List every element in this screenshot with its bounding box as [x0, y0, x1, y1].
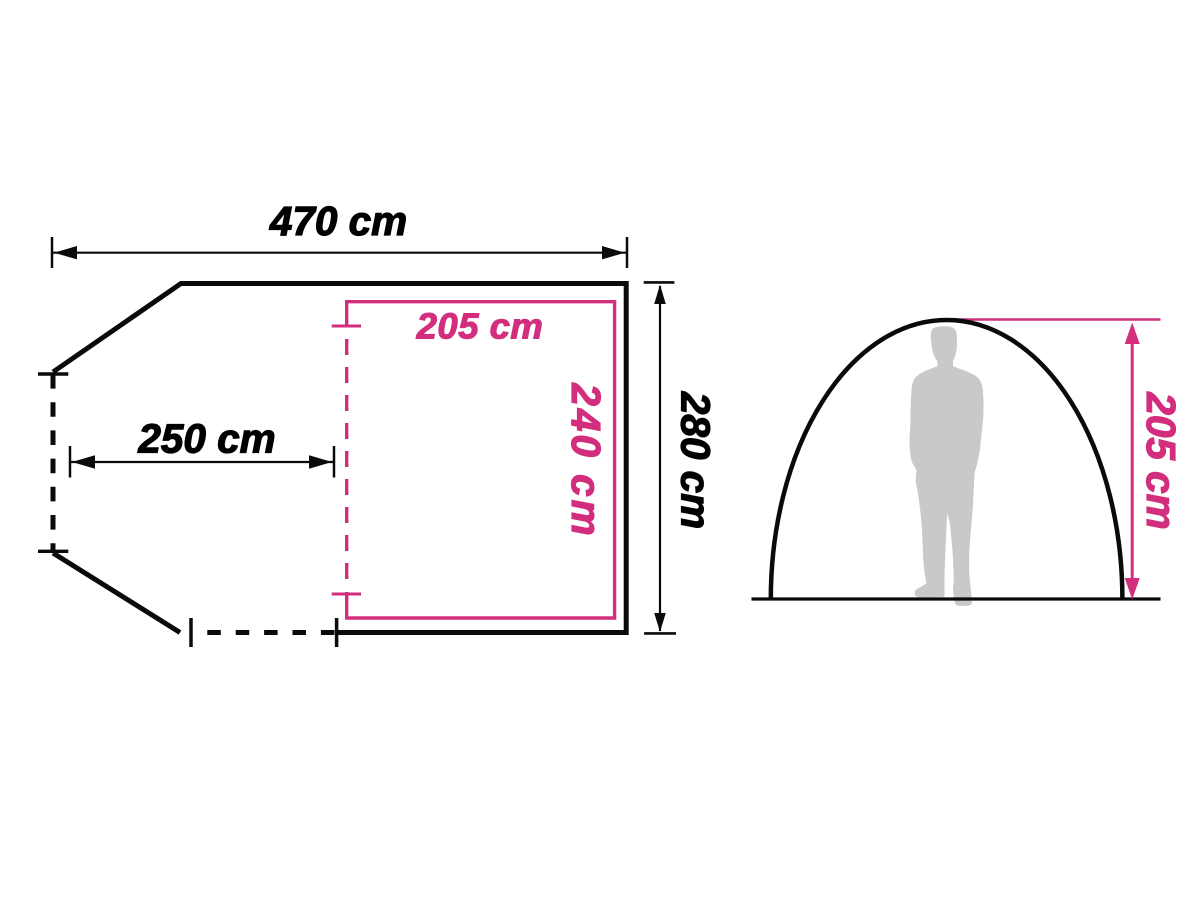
svg-text:250 cm: 250 cm: [137, 416, 275, 462]
svg-text:240 cm: 240 cm: [563, 382, 609, 538]
svg-text:280 cm: 280 cm: [673, 391, 719, 529]
svg-text:205 cm: 205 cm: [1138, 391, 1184, 529]
svg-text:205 cm: 205 cm: [416, 306, 544, 347]
svg-text:470 cm: 470 cm: [269, 198, 407, 244]
